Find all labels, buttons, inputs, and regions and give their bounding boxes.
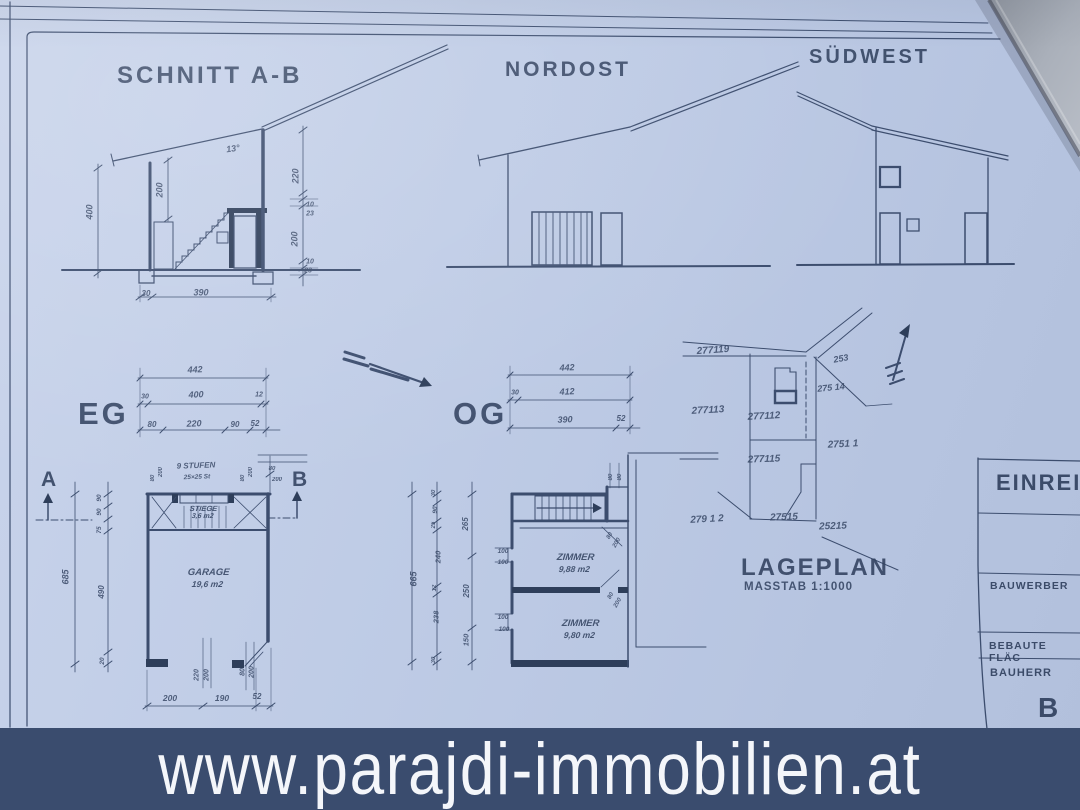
room-area: 9,88 m2 [555,564,594,575]
zimmer2-room-label: ZIMMER 9,80 m2 [560,618,600,641]
titleblock-bauwerber: BAUWERBER [990,580,1068,592]
room-area: 9,80 m2 [560,630,599,641]
og-dimension-block [507,366,640,434]
zimmer1-room-label: ZIMMER 9,88 m2 [555,552,595,575]
suedwest-elevation [797,92,1014,265]
blueprint-linework [0,0,1080,810]
room-area: 19,6 m2 [186,579,229,590]
section-mark-b: B [292,468,310,492]
eg-label: EG [78,396,129,432]
titleblock-partial-letter: B [1038,692,1058,724]
stiege-room-label: STIEGE 3,6 m2 [188,504,217,522]
section-title: SCHNITT A-B [117,62,302,90]
paper-edges [0,2,1000,727]
eg-floor-plan [36,455,307,711]
nordost-title: NORDOST [505,58,631,82]
room-area: 3,6 m2 [188,513,216,522]
titleblock-bebaute-flaeche: BEBAUTE FLÄC [989,640,1080,664]
agency-url: www.parajdi-immobilien.at [158,728,921,810]
hand-arrow-annotation [344,352,432,387]
titleblock-header: EINREIC [996,470,1080,496]
eg-dimension-block [137,368,280,437]
titleblock-bauherr: BAUHERR [990,667,1052,679]
lageplan-scale: MASSTAB 1:1000 [744,581,853,593]
og-label: OG [453,396,507,432]
suedwest-title: SÜDWEST [809,46,930,69]
agency-banner: www.parajdi-immobilien.at [0,728,1080,810]
nordost-elevation [447,62,799,267]
blueprint-photo: SCHNITT A-B NORDOST SÜDWEST EG OG LAGEPL… [0,0,1080,810]
garage-room-label: GARAGE 19,6 m2 [186,567,230,590]
section-mark-a: A [41,468,59,492]
lageplan-title: LAGEPLAN [741,554,889,582]
room-name: GARAGE [187,567,230,579]
room-name: STIEGE [189,504,218,513]
room-name: ZIMMER [561,618,600,630]
title-block-lines [978,458,1080,729]
site-plan [683,308,910,570]
room-name: ZIMMER [556,552,595,564]
photo-corner-overlay [975,0,1080,172]
